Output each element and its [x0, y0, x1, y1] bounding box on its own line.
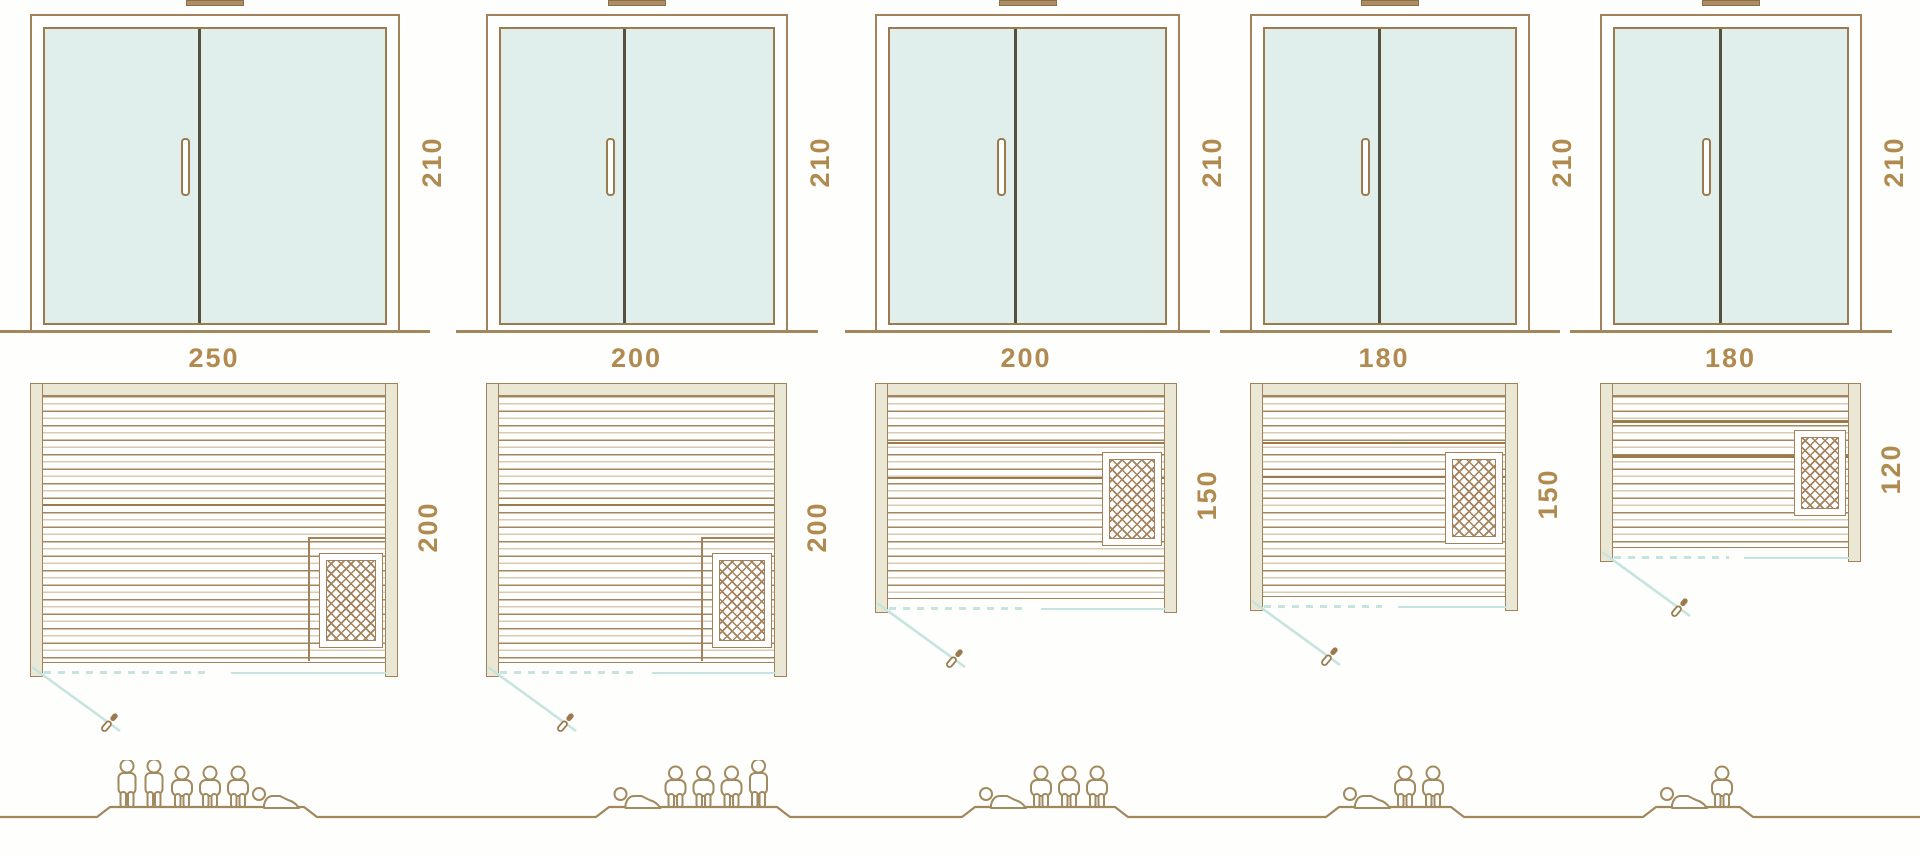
- door-divider-line: [1378, 29, 1381, 323]
- bench-edge-line: [499, 504, 774, 507]
- front-wall-line: [1744, 557, 1850, 560]
- depth-dimension-label: 200: [398, 497, 458, 557]
- glass-door-pair: [43, 27, 387, 325]
- sauna-model-column: 210 200 150: [875, 0, 1180, 856]
- door-handle: [606, 138, 615, 196]
- person-standing-icon: [146, 760, 163, 807]
- wall-top: [30, 383, 398, 396]
- door-swing: [26, 665, 166, 760]
- height-dimension-label: 210: [402, 132, 462, 192]
- front-elevation-view: [30, 14, 400, 332]
- person-lying-icon: [615, 788, 661, 808]
- heater-grid-icon: [1801, 437, 1839, 509]
- front-wall-line: [1398, 606, 1507, 609]
- heater-grid-icon: [719, 560, 765, 641]
- front-elevation-view: [1600, 14, 1862, 332]
- door-swing: [1596, 550, 1736, 645]
- bench-edge-horizontal: [1613, 420, 1848, 423]
- sauna-heater: [1445, 452, 1503, 544]
- chimney-cap: [1361, 0, 1419, 6]
- bench-edge-horizontal: [888, 442, 1164, 445]
- bench-edge-horizontal: [701, 537, 774, 539]
- door-divider-line: [623, 29, 626, 323]
- wall-top: [1250, 383, 1518, 396]
- floor-plan-view: [1250, 383, 1518, 604]
- glass-door-pair: [1613, 27, 1849, 325]
- height-dimension-label: 210: [1864, 132, 1920, 192]
- person-sitting-icon: [694, 767, 714, 808]
- person-sitting-icon: [228, 767, 248, 808]
- sauna-heater: [319, 553, 383, 648]
- height-dimension-label: 210: [1182, 132, 1242, 192]
- wall-left: [1250, 383, 1263, 611]
- width-dimension-label: 250: [30, 343, 398, 374]
- floor-plan-view: [1600, 383, 1861, 555]
- person-lying-icon: [980, 788, 1026, 808]
- sauna-heater: [1102, 452, 1162, 546]
- person-standing-icon: [750, 760, 767, 807]
- person-sitting-icon: [172, 767, 192, 808]
- wall-right: [385, 383, 398, 677]
- wall-right: [1164, 383, 1177, 613]
- width-dimension-label: 180: [1600, 343, 1861, 374]
- door-swing: [1246, 599, 1386, 694]
- sauna-model-column: 210 250 200: [30, 0, 400, 856]
- wall-top: [1600, 383, 1861, 396]
- sauna-model-column: 210 200 200: [486, 0, 788, 856]
- ground-line: [456, 330, 818, 333]
- person-sitting-icon: [1712, 767, 1732, 808]
- heater-grid-icon: [1109, 459, 1155, 539]
- person-sitting-icon: [1395, 767, 1415, 808]
- floor-plan-view: [486, 383, 787, 670]
- wall-top: [486, 383, 787, 396]
- depth-dimension-label: 200: [787, 497, 847, 557]
- depth-dimension-label: 120: [1861, 439, 1920, 499]
- ground-line: [1570, 330, 1892, 333]
- person-lying-icon: [1661, 788, 1707, 808]
- person-lying-icon: [253, 788, 299, 808]
- capacity-figures-strip: [0, 760, 1920, 856]
- bench-edge-vertical: [701, 537, 703, 661]
- person-sitting-icon: [1059, 767, 1079, 808]
- door-handle: [997, 138, 1006, 196]
- sauna-model-column: 210 180 150: [1250, 0, 1530, 856]
- heater-grid-icon: [326, 560, 376, 641]
- person-sitting-icon: [1423, 767, 1443, 808]
- front-elevation-view: [1250, 14, 1530, 332]
- front-wall-line: [1041, 608, 1166, 611]
- door-swing: [871, 601, 1011, 696]
- door-swing: [482, 665, 622, 760]
- person-sitting-icon: [1031, 767, 1051, 808]
- wall-left: [1600, 383, 1613, 562]
- bench-edge-vertical: [308, 537, 310, 661]
- sauna-model-column: 210 180 120: [1600, 0, 1862, 856]
- chimney-cap: [186, 0, 244, 6]
- width-dimension-label: 200: [875, 343, 1177, 374]
- wall-left: [486, 383, 499, 677]
- door-divider-line: [1719, 29, 1722, 323]
- floor-plan-view: [30, 383, 398, 670]
- depth-dimension-label: 150: [1177, 465, 1237, 525]
- sauna-dimension-diagram: 210 250 200: [0, 0, 1920, 856]
- glass-door-pair: [1263, 27, 1517, 325]
- wall-right: [1505, 383, 1518, 611]
- height-dimension-label: 210: [790, 132, 850, 192]
- bench-edge-line: [43, 504, 385, 507]
- chimney-cap: [1702, 0, 1760, 6]
- door-divider-line: [1014, 29, 1017, 323]
- door-divider-line: [198, 29, 201, 323]
- person-sitting-icon: [722, 767, 742, 808]
- door-handle: [1361, 138, 1370, 196]
- glass-door-pair: [888, 27, 1167, 325]
- wall-top: [875, 383, 1177, 396]
- person-lying-icon: [1344, 788, 1390, 808]
- door-handle: [1702, 138, 1711, 196]
- bench-edge-horizontal: [308, 537, 385, 539]
- front-elevation-view: [486, 14, 788, 332]
- person-sitting-icon: [200, 767, 220, 808]
- chimney-cap: [999, 0, 1057, 6]
- floor-plan-view: [875, 383, 1177, 606]
- height-dimension-label: 210: [1532, 132, 1592, 192]
- front-wall-line: [652, 672, 776, 675]
- person-sitting-icon: [666, 767, 686, 808]
- width-dimension-label: 200: [486, 343, 787, 374]
- ground-line: [1220, 330, 1560, 333]
- wall-right: [774, 383, 787, 677]
- chimney-cap: [608, 0, 666, 6]
- person-sitting-icon: [1087, 767, 1107, 808]
- wall-right: [1848, 383, 1861, 562]
- front-elevation-view: [875, 14, 1180, 332]
- door-handle: [181, 138, 190, 196]
- glass-door-pair: [499, 27, 775, 325]
- wall-left: [30, 383, 43, 677]
- person-standing-icon: [119, 760, 136, 807]
- width-dimension-label: 180: [1250, 343, 1518, 374]
- ground-line: [845, 330, 1210, 333]
- ground-line: [0, 330, 430, 333]
- bench-edge-horizontal: [1263, 442, 1505, 445]
- front-wall-line: [231, 672, 387, 675]
- sauna-heater: [1794, 430, 1846, 516]
- depth-dimension-label: 150: [1518, 464, 1578, 524]
- wall-left: [875, 383, 888, 613]
- heater-grid-icon: [1452, 459, 1496, 537]
- sauna-heater: [712, 553, 772, 648]
